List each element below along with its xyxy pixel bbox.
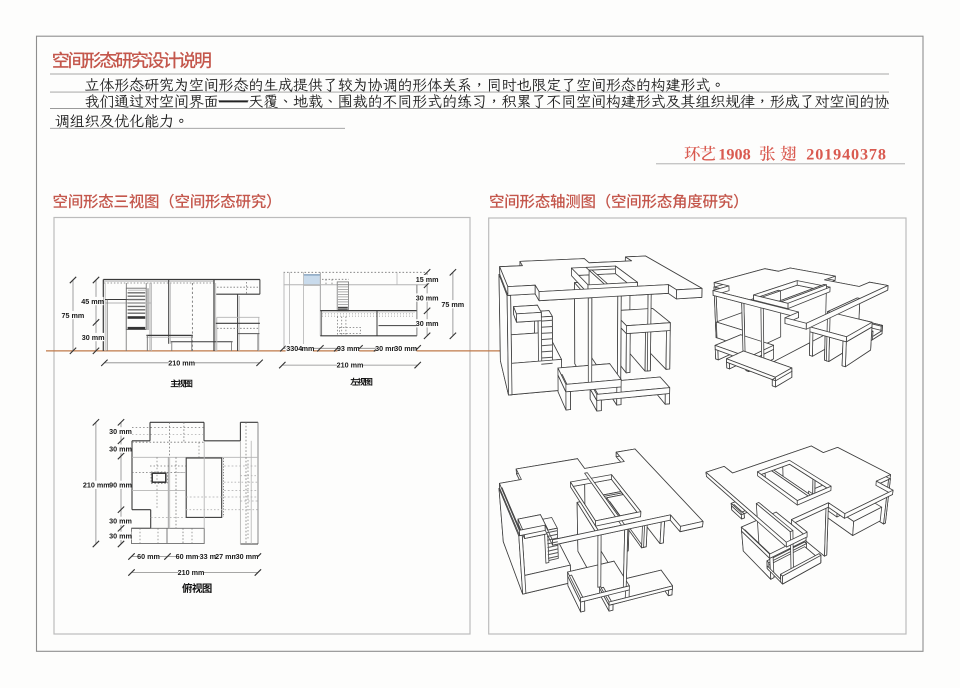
svg-text:90 mm: 90 mm [109,481,132,490]
svg-text:60 mm: 60 mm [176,552,199,561]
svg-text:15 mm: 15 mm [416,275,439,284]
svg-text:201940378: 201940378 [806,146,887,164]
svg-text:30 mm: 30 mm [82,333,105,342]
svg-text:30 mm: 30 mm [109,517,132,526]
svg-text:mm: mm [302,344,315,353]
svg-text:45 mm: 45 mm [81,297,104,306]
svg-text:27 mm: 27 mm [215,552,238,561]
svg-text:30 mm: 30 mm [109,532,132,541]
svg-text:210 mm: 210 mm [337,361,364,370]
svg-text:30 mm: 30 mm [416,293,439,302]
svg-text:60 mm: 60 mm [137,552,160,561]
svg-text:30 mm: 30 mm [416,319,439,328]
svg-text:210 mm: 210 mm [83,481,110,490]
svg-text:30 mm: 30 mm [394,344,417,353]
svg-text:93 mm: 93 mm [337,344,360,353]
svg-text:30 mm: 30 mm [236,552,259,561]
svg-text:1908: 1908 [718,146,750,164]
svg-text:75 mm: 75 mm [62,311,85,320]
svg-text:210 mm: 210 mm [168,358,195,367]
svg-text:210 mm: 210 mm [178,568,205,577]
svg-text:30 mm: 30 mm [109,444,132,453]
svg-text:30 mm: 30 mm [109,427,132,436]
svg-text:75 mm: 75 mm [441,300,464,309]
